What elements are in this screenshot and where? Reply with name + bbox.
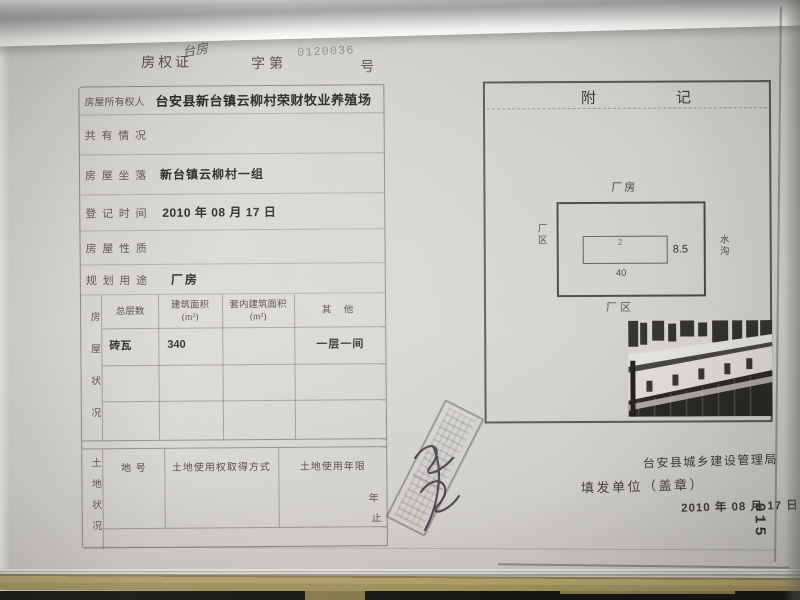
issue-unit-label: 填发单位（盖章） [581,474,706,497]
table-shadow-strip [0,591,800,600]
diagram-building-outline [583,236,668,264]
certificate-photo: 房权证 台房 字第 0120036 号 房屋所有权人 台安县新台镇云柳村荣财牧业… [0,0,800,600]
diagram-unit-number: 2 [618,237,623,247]
right-edge-shadow [784,0,800,600]
annex-title: 附记 [581,86,771,108]
diagram-height-dimension: 8.5 [673,243,688,255]
diagram-left-label: 厂区 [534,223,548,246]
diagram-width-dimension: 40 [616,268,627,279]
sideways-page-number: 015 [751,503,768,539]
table-gap [305,591,365,600]
table-gap [560,591,735,594]
diagram-bottom-label: 厂区 [606,299,634,315]
diagram-right-label: 水沟 [716,234,730,257]
building-photo-graphic [628,320,773,417]
diagram-top-label: 厂房 [611,179,637,195]
issue-date: 2010 年 08 月 17 日 [681,497,799,516]
signature-scrawl [399,428,483,540]
building-photo [628,320,773,417]
issuing-authority: 台安县城乡建设管理局 [643,450,778,471]
